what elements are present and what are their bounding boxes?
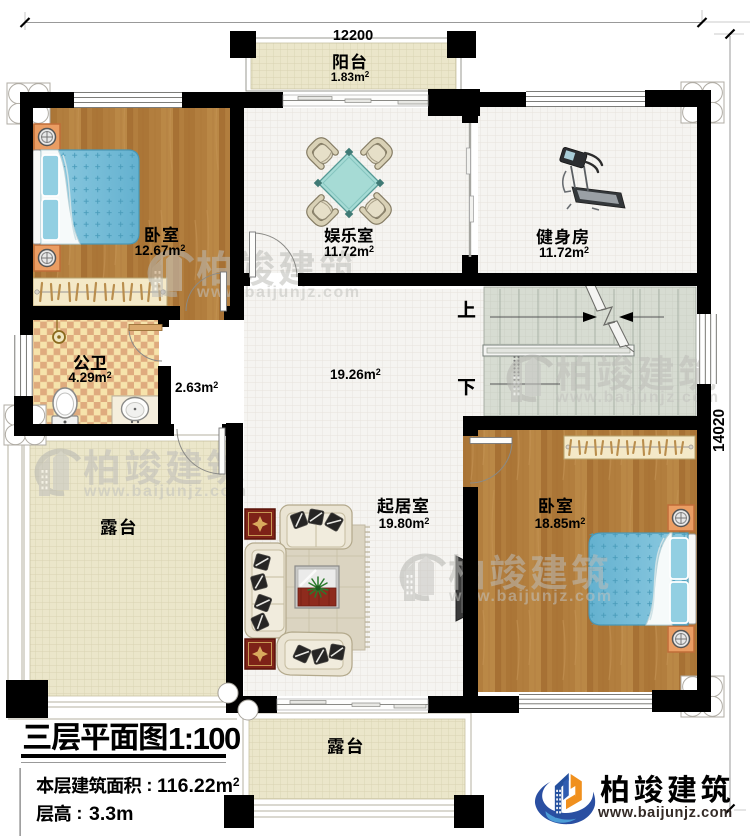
- svg-text:19.80m2: 19.80m2: [379, 516, 430, 531]
- svg-text:18.85m2: 18.85m2: [535, 516, 586, 531]
- svg-text:12.67m2: 12.67m2: [135, 243, 186, 258]
- svg-text:11.72m2: 11.72m2: [324, 244, 374, 259]
- svg-text:1.83m2: 1.83m2: [331, 70, 370, 84]
- svg-text:116.22m2: 116.22m2: [157, 775, 240, 797]
- svg-text:11.72m2: 11.72m2: [539, 245, 589, 260]
- svg-text:www.baijunjz.com: www.baijunjz.com: [555, 389, 720, 406]
- svg-text:3.3m: 3.3m: [89, 803, 133, 825]
- svg-text:www.baijunjz.com: www.baijunjz.com: [83, 483, 248, 500]
- svg-text:1:100: 1:100: [168, 721, 240, 756]
- svg-text:14020: 14020: [711, 409, 728, 452]
- svg-text:4.29m2: 4.29m2: [68, 370, 111, 385]
- svg-text:2.63m2: 2.63m2: [175, 380, 218, 395]
- svg-text:www.baijunjz.com: www.baijunjz.com: [597, 805, 733, 821]
- svg-text:12200: 12200: [333, 28, 373, 44]
- svg-text:19.26m2: 19.26m2: [330, 367, 381, 382]
